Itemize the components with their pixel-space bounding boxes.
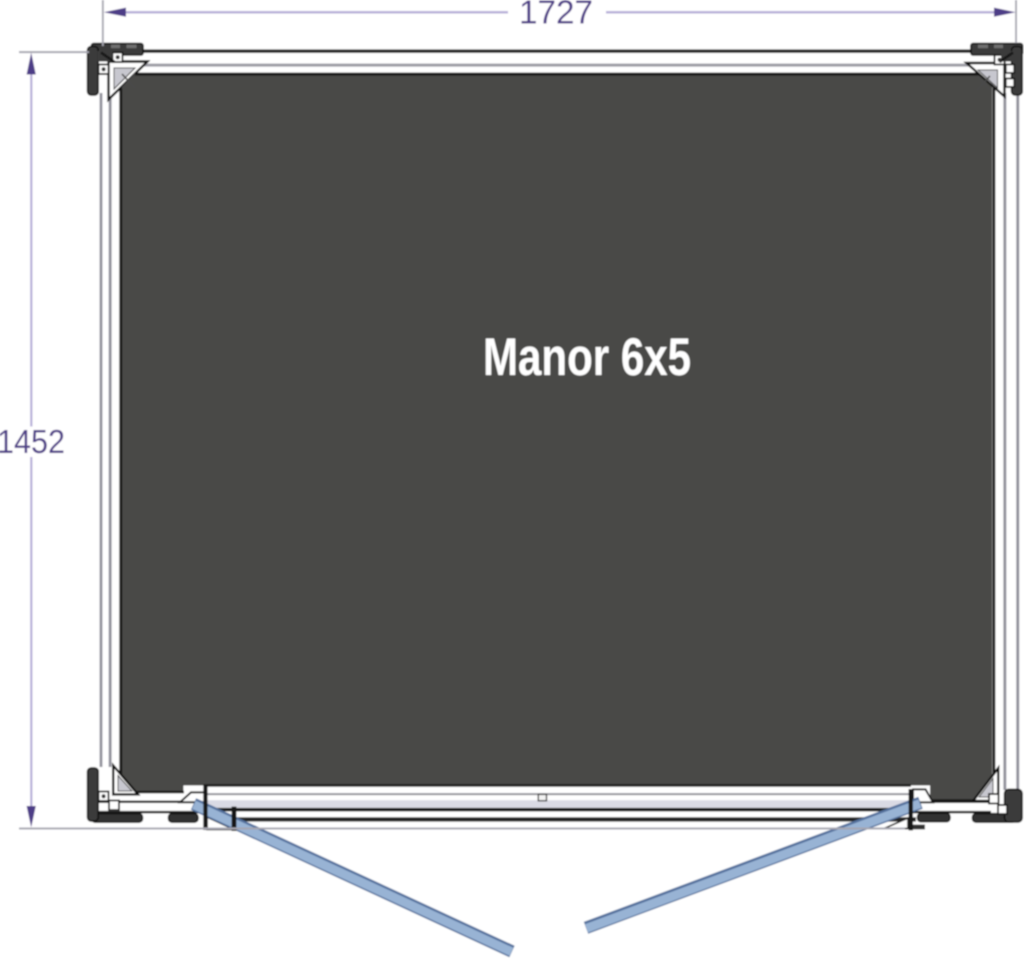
svg-text:1452: 1452 [0, 423, 65, 460]
svg-text:1727: 1727 [519, 0, 593, 31]
svg-text:Manor 6x5: Manor 6x5 [483, 328, 691, 387]
